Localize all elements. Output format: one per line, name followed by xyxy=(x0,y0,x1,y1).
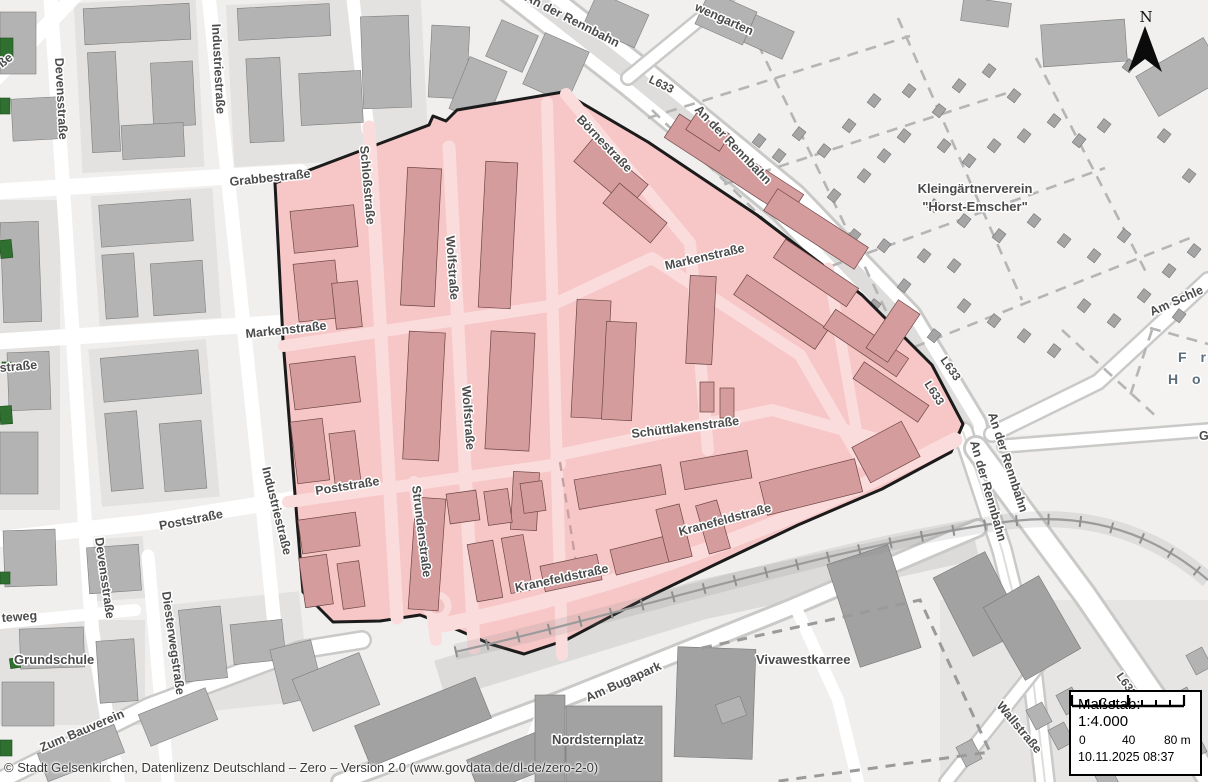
place-label-grundschule: Grundschule xyxy=(14,652,94,667)
scale-bar-ticks: 0 40 80 m xyxy=(1078,733,1193,747)
place-label-vivawestkarree: Vivawestkarree xyxy=(756,652,850,667)
attribution-text: © Stadt Gelsenkirchen, Datenlizenz Deuts… xyxy=(4,760,598,775)
place-label-hor: H o r xyxy=(1168,371,1208,387)
scale-tick-40: 40 xyxy=(1122,733,1135,747)
street-label-g-edge: G xyxy=(1199,429,1208,443)
place-label-kleingarten-1: Kleingärtnerverein xyxy=(918,181,1033,196)
scale-tick-80: 80 m xyxy=(1164,733,1191,747)
north-arrow-label: N xyxy=(1139,8,1152,26)
map-svg[interactable]: Devensstraße Devensstraße Industriestraß… xyxy=(0,0,1208,782)
scale-panel: Maßstab: 1:4.000 0 40 80 m 10.11.2025 08… xyxy=(1069,690,1202,776)
scale-bar xyxy=(1071,693,1189,708)
street-label-teweg: teweg xyxy=(1,609,37,625)
map-canvas[interactable]: Devensstraße Devensstraße Industriestraß… xyxy=(0,0,1208,782)
scale-tick-0: 0 xyxy=(1079,733,1086,747)
place-label-fr: F r xyxy=(1178,349,1208,365)
place-label-kleingarten-2: "Horst-Emscher" xyxy=(922,199,1028,214)
place-label-nordsternplatz: Nordsternplatz xyxy=(552,732,644,747)
map-timestamp: 10.11.2025 08:37 xyxy=(1078,750,1193,764)
